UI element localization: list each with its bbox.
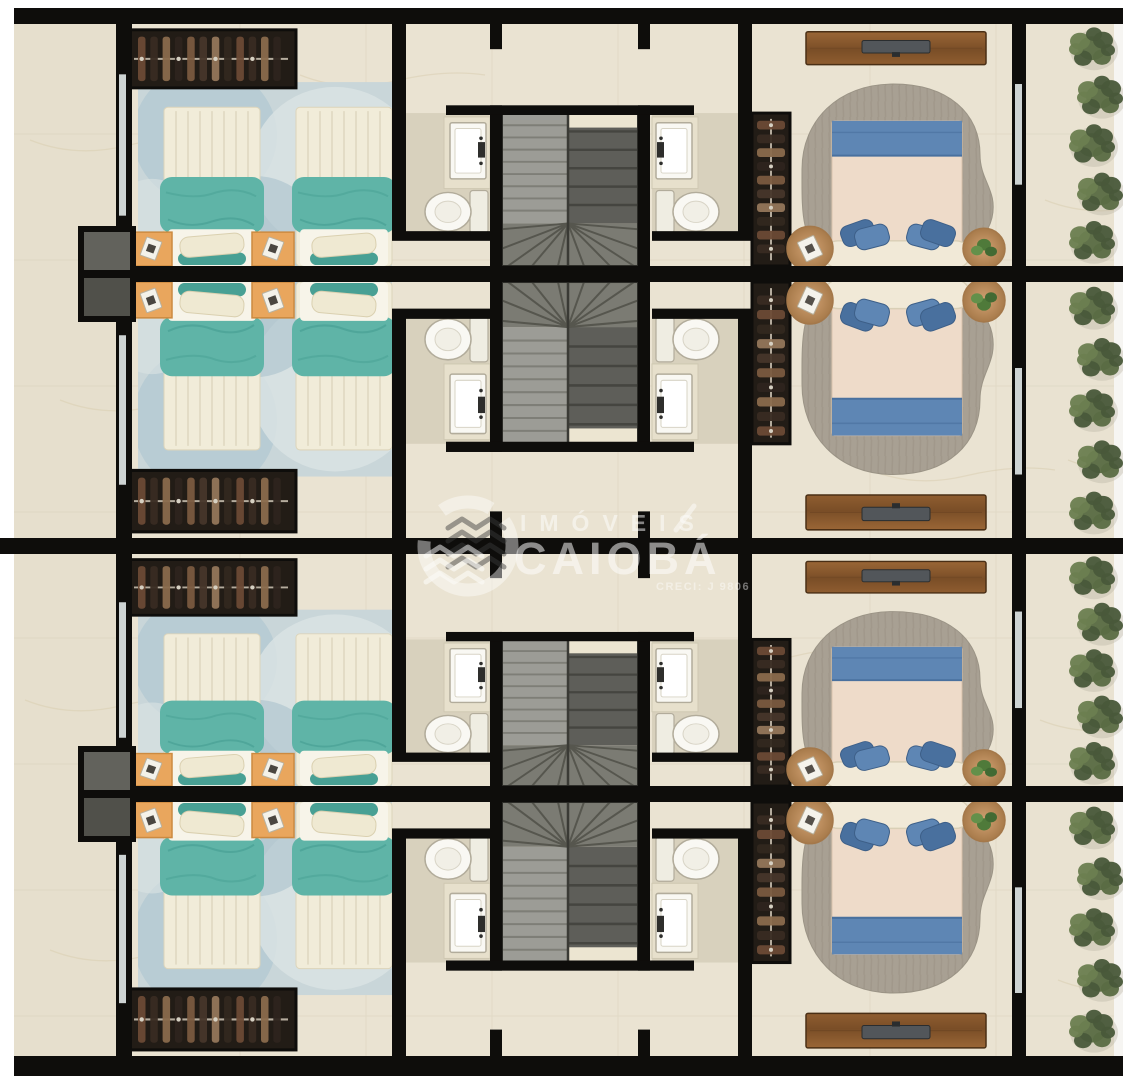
toilet	[656, 837, 719, 882]
stair-landing	[568, 428, 638, 443]
side-table	[963, 799, 1005, 842]
watermark-caioba: CAIOBÁ	[514, 533, 722, 584]
entry-niche	[78, 746, 136, 842]
staircase	[502, 802, 638, 963]
nightstand	[252, 282, 294, 318]
single-bed	[292, 282, 396, 450]
wardrobe-closet	[752, 113, 790, 266]
tv-console	[806, 1013, 986, 1048]
double-bed	[824, 280, 970, 436]
sink	[444, 364, 490, 440]
bathroom-right	[652, 837, 738, 963]
double-bed	[824, 121, 970, 268]
bathroom-right	[652, 639, 738, 754]
window-glass	[119, 74, 126, 215]
nightstand	[252, 754, 294, 786]
side-table	[787, 226, 833, 271]
side-table	[787, 797, 833, 844]
entry-niche	[78, 226, 136, 322]
wardrobe-closet	[752, 282, 790, 444]
sink	[444, 117, 490, 189]
sink	[652, 883, 698, 958]
bathroom-right	[652, 113, 738, 233]
side-table	[787, 277, 833, 324]
toilet	[656, 714, 719, 755]
staircase	[502, 113, 638, 266]
nightstand	[130, 232, 172, 266]
nightstand	[252, 232, 294, 266]
tv-console	[806, 32, 986, 65]
wardrobe-closet	[752, 639, 790, 786]
tv	[862, 40, 930, 53]
nightstand	[130, 282, 172, 318]
wardrobe	[126, 560, 296, 616]
single-bed	[160, 634, 264, 786]
single-bed	[160, 107, 264, 266]
floor-plan: IMÓVEIS CAIOBÁ CRECI: J 9806	[0, 0, 1123, 1080]
double-bed	[824, 647, 970, 788]
sink	[652, 643, 698, 712]
wardrobe	[126, 30, 296, 88]
watermark-imoveis: IMÓVEIS	[520, 509, 707, 536]
single-bed	[292, 802, 396, 969]
bathroom-left	[406, 639, 490, 754]
wall-top	[14, 8, 1123, 24]
side-table	[963, 279, 1005, 322]
wall-party-1	[84, 266, 1123, 282]
tv-console	[806, 495, 986, 530]
wardrobe	[126, 470, 296, 531]
side-table	[963, 228, 1005, 269]
stair-landing	[568, 947, 638, 962]
balcony-door-glass	[1015, 368, 1022, 474]
window-glass	[119, 855, 126, 1003]
watermark-creci: CRECI: J 9806	[656, 581, 750, 593]
tv	[862, 570, 930, 582]
toilet	[425, 190, 488, 233]
floor-plan-canvas: IMÓVEIS CAIOBÁ CRECI: J 9806	[0, 0, 1123, 1080]
wall-bottom	[14, 1056, 1123, 1076]
single-bed	[292, 634, 396, 786]
toilet	[425, 317, 488, 362]
staircase	[502, 282, 638, 444]
window-glass	[119, 602, 126, 737]
tv	[862, 1026, 930, 1039]
nightstand	[130, 754, 172, 786]
sink	[652, 117, 698, 189]
wardrobe-closet	[752, 802, 790, 963]
wall-party-3	[84, 786, 1123, 802]
sink	[444, 883, 490, 958]
tv-console	[806, 561, 986, 593]
bathroom-right	[652, 317, 738, 444]
balcony-door-glass	[1015, 612, 1022, 709]
side-table	[787, 748, 833, 791]
single-bed	[292, 107, 396, 266]
toilet	[425, 714, 488, 755]
bathroom-left	[406, 317, 490, 444]
toilet	[656, 190, 719, 233]
bathroom-left	[406, 113, 490, 233]
sink	[652, 364, 698, 440]
toilet	[656, 317, 719, 362]
stair-landing	[568, 113, 638, 128]
nightstand	[130, 802, 172, 838]
balcony-door-glass	[1015, 887, 1022, 993]
toilet	[425, 837, 488, 882]
sink	[444, 643, 490, 712]
side-table	[963, 750, 1005, 789]
double-bed	[824, 800, 970, 954]
bathroom-left	[406, 837, 490, 963]
balcony-door-glass	[1015, 84, 1022, 185]
single-bed	[160, 802, 264, 969]
staircase	[502, 639, 638, 786]
single-bed	[160, 282, 264, 450]
tv	[862, 507, 930, 520]
nightstand	[252, 802, 294, 838]
wardrobe	[126, 989, 296, 1050]
window-glass	[119, 335, 126, 485]
stair-landing	[568, 639, 638, 653]
